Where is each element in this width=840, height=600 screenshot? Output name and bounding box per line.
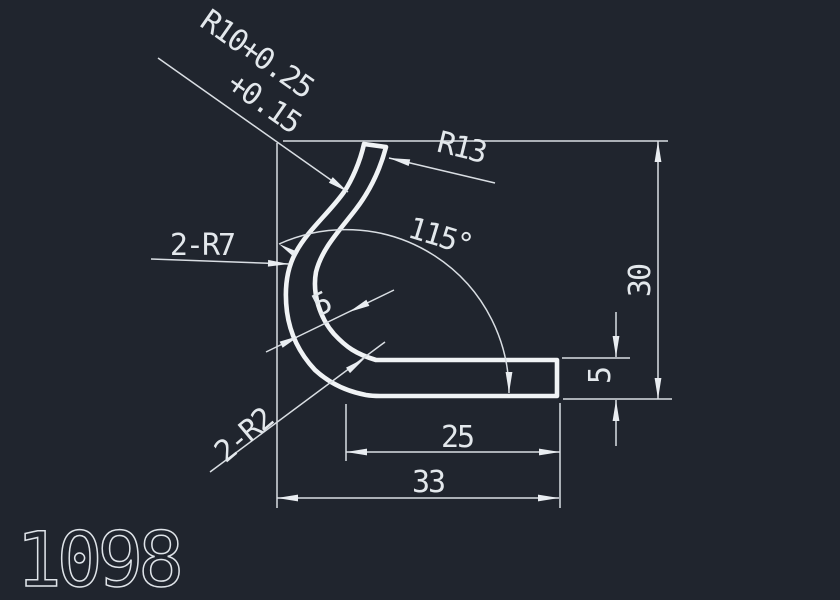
label-r10-tolerance: R10+0.25 +0.15 — [173, 3, 327, 141]
arrow-25-right — [539, 449, 560, 456]
cad-drawing: R10+0.25 +0.15 R13 115° 2-R7 5 2-R2 25 3… — [0, 0, 840, 600]
label-2-r2: 2-R2 — [208, 402, 280, 470]
arrow-r13 — [388, 155, 410, 166]
cad-viewport: R10+0.25 +0.15 R13 115° 2-R7 5 2-R2 25 3… — [0, 0, 840, 600]
label-dim-33: 33 — [412, 465, 444, 500]
arrow-5-bottom — [613, 400, 620, 421]
arrow-30-bottom — [655, 378, 662, 399]
label-2-r7: 2-R7 — [170, 228, 234, 263]
arrow-33-right — [538, 495, 559, 502]
profile-outline — [286, 144, 557, 396]
drawing-number: 1098 — [16, 515, 179, 600]
label-dim-5-flange: 5 — [583, 368, 618, 384]
arrow-25-left — [346, 449, 367, 456]
arrow-33-left — [277, 495, 298, 502]
arrow-r7 — [268, 260, 289, 268]
label-dim-25: 25 — [441, 420, 473, 455]
label-wall-thickness-5: 5 — [307, 285, 337, 323]
label-angle-115: 115° — [404, 211, 476, 263]
arrow-30-top — [655, 141, 662, 162]
label-r13: R13 — [434, 125, 489, 171]
label-dim-30: 30 — [623, 264, 658, 297]
arrow-thickness-right — [348, 300, 370, 315]
arrow-arc-end — [506, 372, 513, 393]
arrow-5-top — [613, 336, 620, 357]
